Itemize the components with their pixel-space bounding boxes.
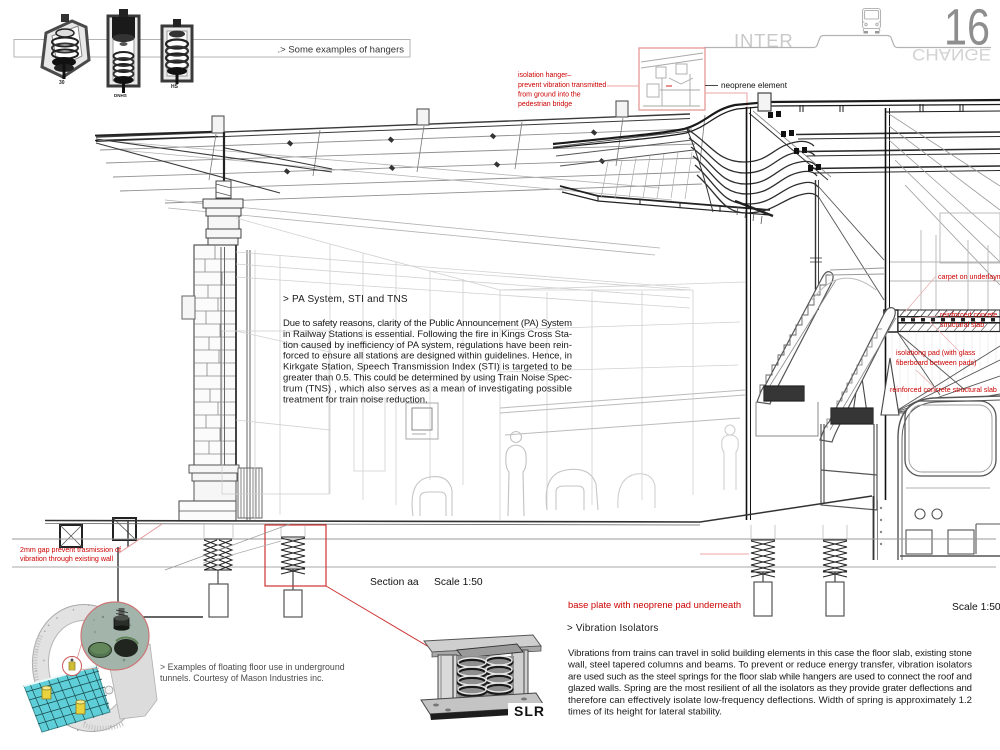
svg-text:> PA System, STI and TNS: > PA System, STI and TNS (283, 294, 408, 305)
svg-text:base plate with neoprene pad u: base plate with neoprene pad underneath (568, 599, 741, 610)
svg-text:Kirkgate Station, Speech Trans: Kirkgate Station, Speech Transmission In… (283, 362, 572, 373)
svg-text:glazed walls. Spring are the m: glazed walls. Spring are the most resili… (568, 683, 972, 694)
svg-text:carpet on underlayment: carpet on underlayment (938, 273, 1000, 281)
svg-text:prevent vibration transmitted: prevent vibration transmitted (518, 82, 606, 89)
svg-text:Section aa: Section aa (370, 577, 419, 588)
svg-text:Vibrations from trains can tra: Vibrations from trains can travel in sol… (568, 648, 972, 659)
svg-text:isolationg pad (with glass: isolationg pad (with glass (896, 349, 976, 357)
svg-text:reinforced conrete: reinforced conrete (940, 311, 997, 319)
svg-text:Due to safety reasons, clarity: Due to safety reasons, clarity of the Pu… (283, 318, 572, 329)
svg-text:times of its height for latera: times of its height for lateral stabilit… (568, 707, 722, 718)
svg-text:greater than 0.5. This could b: greater than 0.5. This could be determin… (283, 373, 572, 384)
svg-text:vibration through existing wal: vibration through existing wall (20, 555, 113, 563)
svg-text:Scale 1:50: Scale 1:50 (434, 577, 483, 588)
svg-text:fiberboard between pads): fiberboard between pads) (896, 359, 976, 367)
svg-text:> Examples of floating floor u: > Examples of floating floor use in unde… (160, 662, 345, 672)
svg-text:trum (TNS) , which also serves: trum (TNS) , which also serves as a mean… (283, 383, 572, 394)
svg-text:SLR: SLR (514, 703, 545, 719)
svg-text:2mm gap prevent trasmission of: 2mm gap prevent trasmission of (20, 546, 121, 554)
svg-text:neoprene element: neoprene element (721, 81, 788, 90)
svg-text:in Railway Stations is essenti: in Railway Stations is essential. Follow… (283, 329, 572, 340)
svg-text:are used such as the steel spr: are used such as the steel springs for t… (568, 671, 972, 682)
svg-text:tunnels. Courtesy of Mason Ind: tunnels. Courtesy of Mason Industries in… (160, 673, 324, 683)
svg-text:tion caused by inefficiency of: tion caused by inefficiency of PA system… (283, 340, 572, 351)
svg-text:isolation hanger–: isolation hanger– (518, 72, 571, 79)
svg-text:30: 30 (59, 80, 65, 86)
svg-text:reinforced concrete structural: reinforced concrete structural slab (890, 386, 997, 394)
svg-text:> Vibration Isolators: > Vibration Isolators (567, 623, 659, 634)
svg-text:HS: HS (171, 84, 179, 90)
svg-text:pedestrian bridge: pedestrian bridge (518, 101, 572, 108)
svg-text:structural slab: structural slab (940, 321, 984, 329)
svg-text:DNHS: DNHS (114, 93, 127, 98)
svg-text:treatment for train noise redu: treatment for train noise reduction. (283, 394, 428, 405)
svg-text:therefore can effectively isol: therefore can effectively isolate low-fr… (568, 695, 972, 706)
svg-text:from ground into the: from ground into the (518, 92, 581, 99)
svg-text:.> Some examples of hangers: .> Some examples of hangers (278, 45, 405, 56)
svg-text:forced to ensure all stations: forced to ensure all stations are design… (283, 351, 572, 362)
svg-text:Scale 1:50: Scale 1:50 (952, 602, 1000, 613)
svg-text:wall, steel tapered columns an: wall, steel tapered columns and beams. T… (567, 660, 972, 671)
